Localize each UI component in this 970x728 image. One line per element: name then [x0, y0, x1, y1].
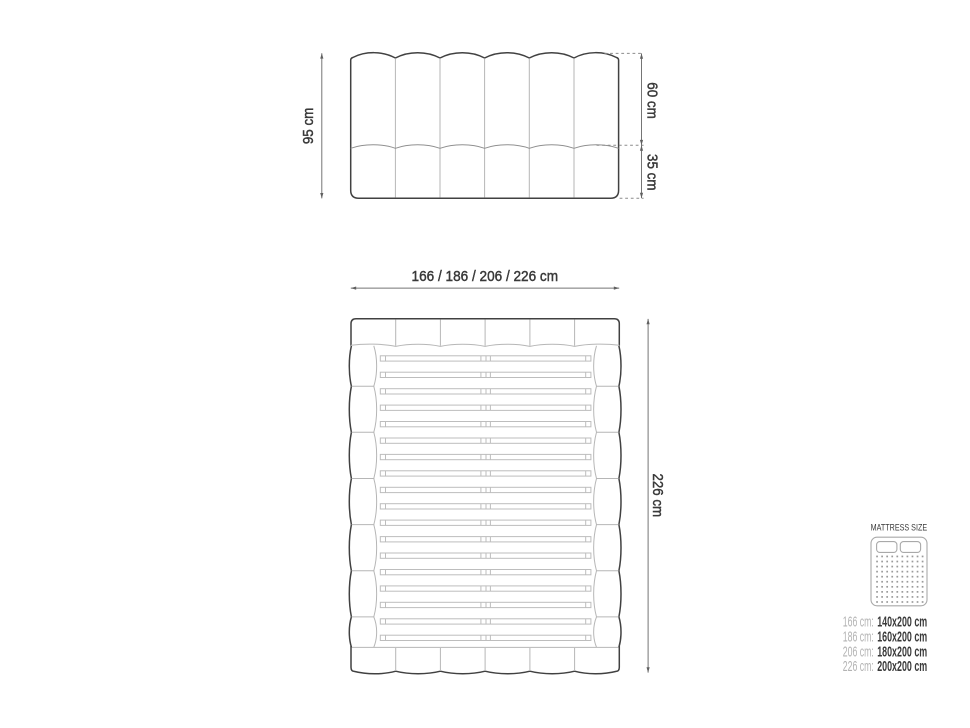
svg-text:226 cm:: 226 cm:	[843, 658, 874, 675]
svg-text:166 / 186 / 206 / 226 cm: 166 / 186 / 206 / 226 cm	[412, 268, 559, 285]
svg-text:95 cm: 95 cm	[300, 108, 317, 144]
svg-text:35 cm: 35 cm	[644, 154, 661, 191]
svg-text:226 cm: 226 cm	[649, 474, 666, 518]
svg-text:200x200 cm: 200x200 cm	[877, 658, 927, 675]
svg-text:MATTRESS SIZE: MATTRESS SIZE	[871, 523, 928, 534]
svg-text:60 cm: 60 cm	[644, 82, 661, 119]
